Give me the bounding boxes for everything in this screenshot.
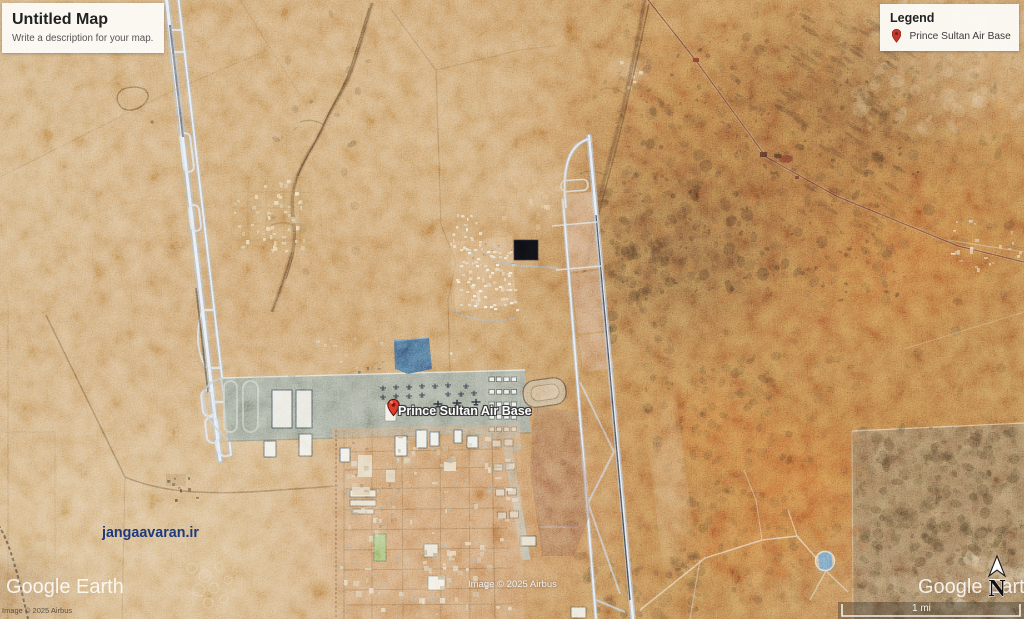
svg-text:N: N (988, 576, 1006, 600)
